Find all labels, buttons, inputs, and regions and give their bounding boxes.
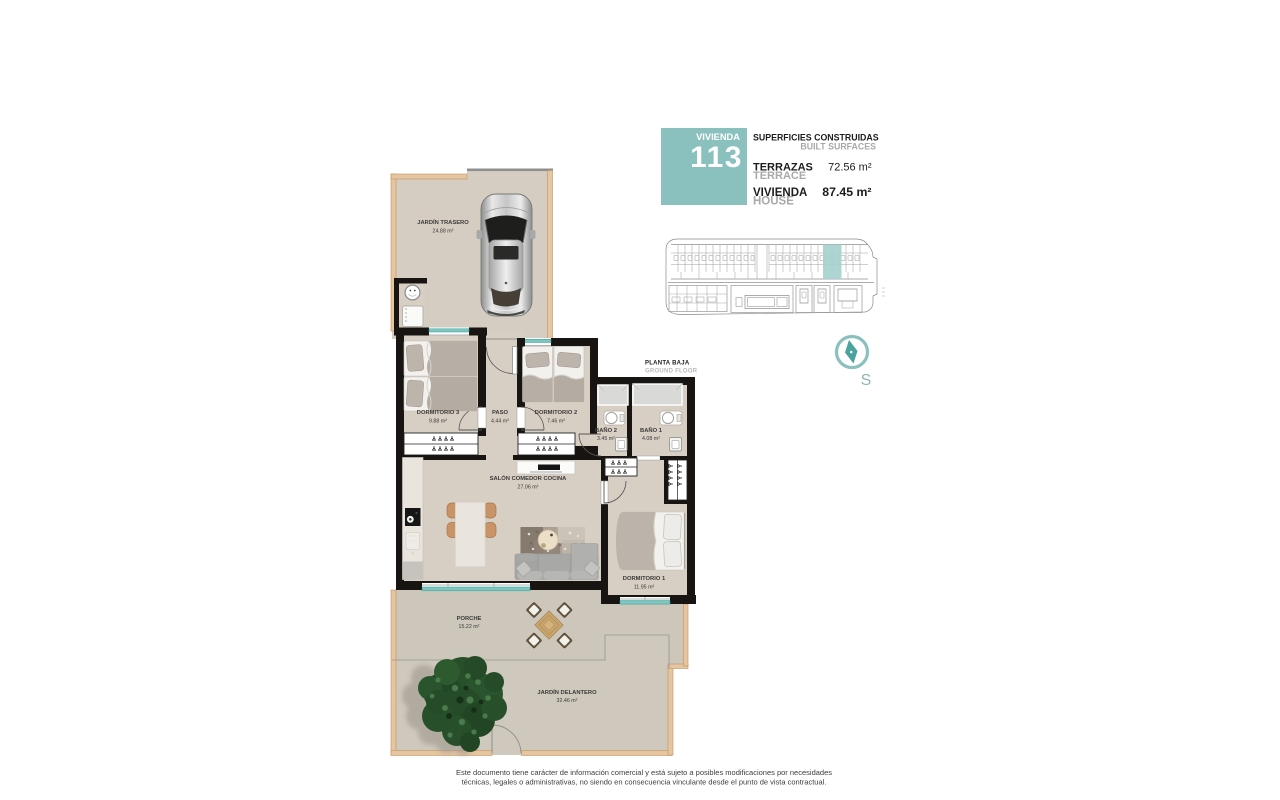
svg-text:TERRACE: TERRACE xyxy=(753,170,806,182)
svg-text:27.06 m²: 27.06 m² xyxy=(518,485,539,491)
svg-text:BUILT SURFACES: BUILT SURFACES xyxy=(800,142,876,152)
svg-text:JARDÍN DELANTERO: JARDÍN DELANTERO xyxy=(537,688,597,696)
svg-text:HOUSE: HOUSE xyxy=(753,196,794,208)
svg-text:9.88 m²: 9.88 m² xyxy=(429,419,447,425)
svg-text:11.95 m²: 11.95 m² xyxy=(634,585,655,591)
svg-text:JARDÍN TRASERO: JARDÍN TRASERO xyxy=(417,218,469,226)
svg-text:87.45 m²: 87.45 m² xyxy=(822,185,871,199)
svg-text:32.46 m²: 32.46 m² xyxy=(557,698,578,704)
svg-text:72.56 m²: 72.56 m² xyxy=(828,162,872,174)
svg-text:Este documento tiene carácter: Este documento tiene carácter de informa… xyxy=(456,768,832,777)
svg-text:BAÑO 2: BAÑO 2 xyxy=(595,427,617,434)
svg-text:DORMITORIO 3: DORMITORIO 3 xyxy=(417,410,460,416)
svg-text:7.46 m²: 7.46 m² xyxy=(547,419,565,425)
svg-text:24.88 m²: 24.88 m² xyxy=(433,229,454,235)
svg-text:S: S xyxy=(861,372,872,389)
svg-text:DORMITORIO 2: DORMITORIO 2 xyxy=(535,410,577,416)
svg-text:15.22 m²: 15.22 m² xyxy=(459,624,480,630)
svg-text:3.45 m²: 3.45 m² xyxy=(597,436,615,442)
svg-text:DORMITORIO 1: DORMITORIO 1 xyxy=(623,576,666,582)
svg-text:SALÓN COMEDOR COCINA: SALÓN COMEDOR COCINA xyxy=(490,474,567,482)
svg-text:113: 113 xyxy=(690,141,743,174)
svg-text:técnicas, legales o administra: técnicas, legales o administrativas, no … xyxy=(462,778,827,787)
svg-text:4.44 m²: 4.44 m² xyxy=(491,419,509,425)
svg-text:BAÑO 1: BAÑO 1 xyxy=(640,427,663,434)
svg-text:PLANTA BAJA: PLANTA BAJA xyxy=(645,361,690,367)
svg-text:PASO: PASO xyxy=(492,410,508,416)
svg-text:PORCHE: PORCHE xyxy=(457,616,482,622)
svg-text:GROUND FLOOR: GROUND FLOOR xyxy=(645,369,698,375)
svg-text:4.08 m²: 4.08 m² xyxy=(642,436,660,442)
